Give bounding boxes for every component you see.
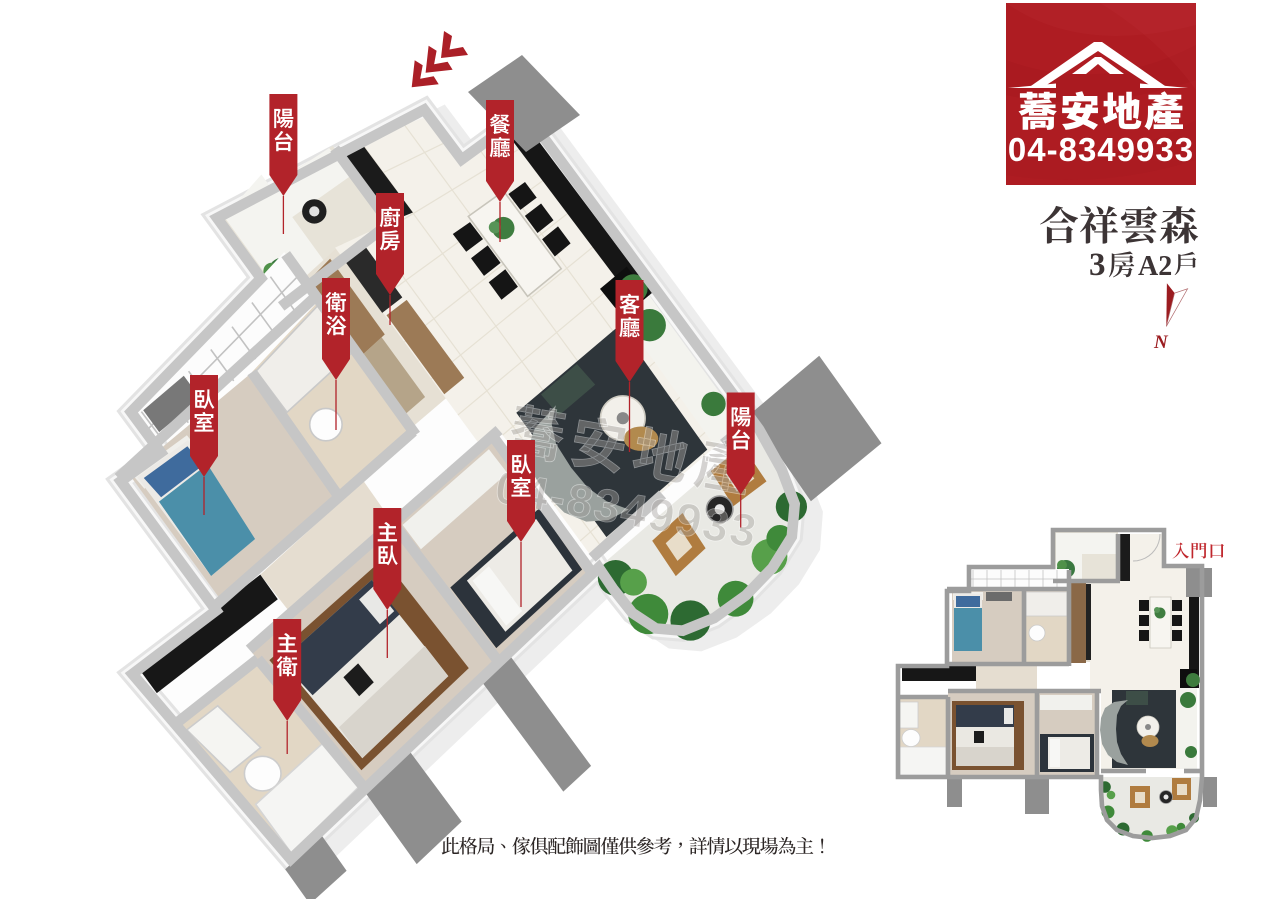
svg-text:A2: A2 — [1138, 251, 1172, 282]
svg-text:04-8349933: 04-8349933 — [1008, 131, 1194, 168]
svg-text:N: N — [1153, 332, 1169, 353]
svg-text:3: 3 — [1089, 247, 1106, 283]
